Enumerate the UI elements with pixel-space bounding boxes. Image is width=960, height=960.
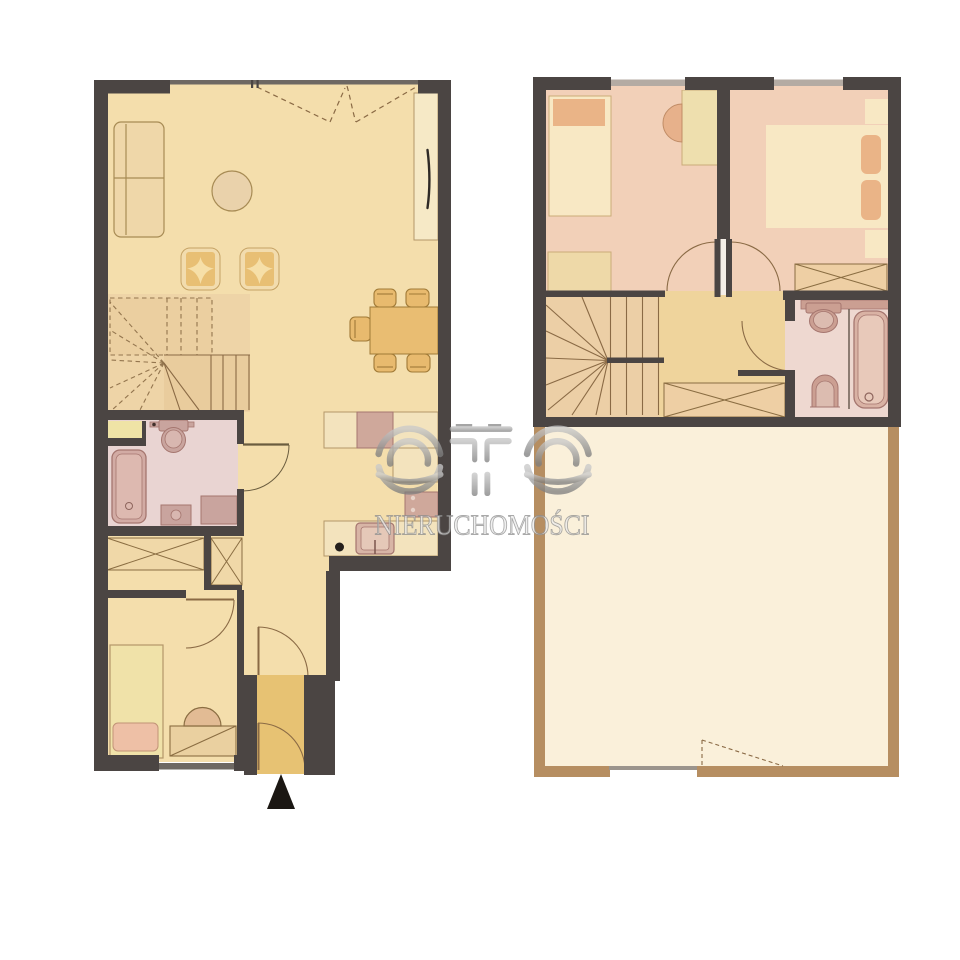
- svg-text:NIERUCHOMOŚCI: NIERUCHOMOŚCI: [375, 511, 590, 542]
